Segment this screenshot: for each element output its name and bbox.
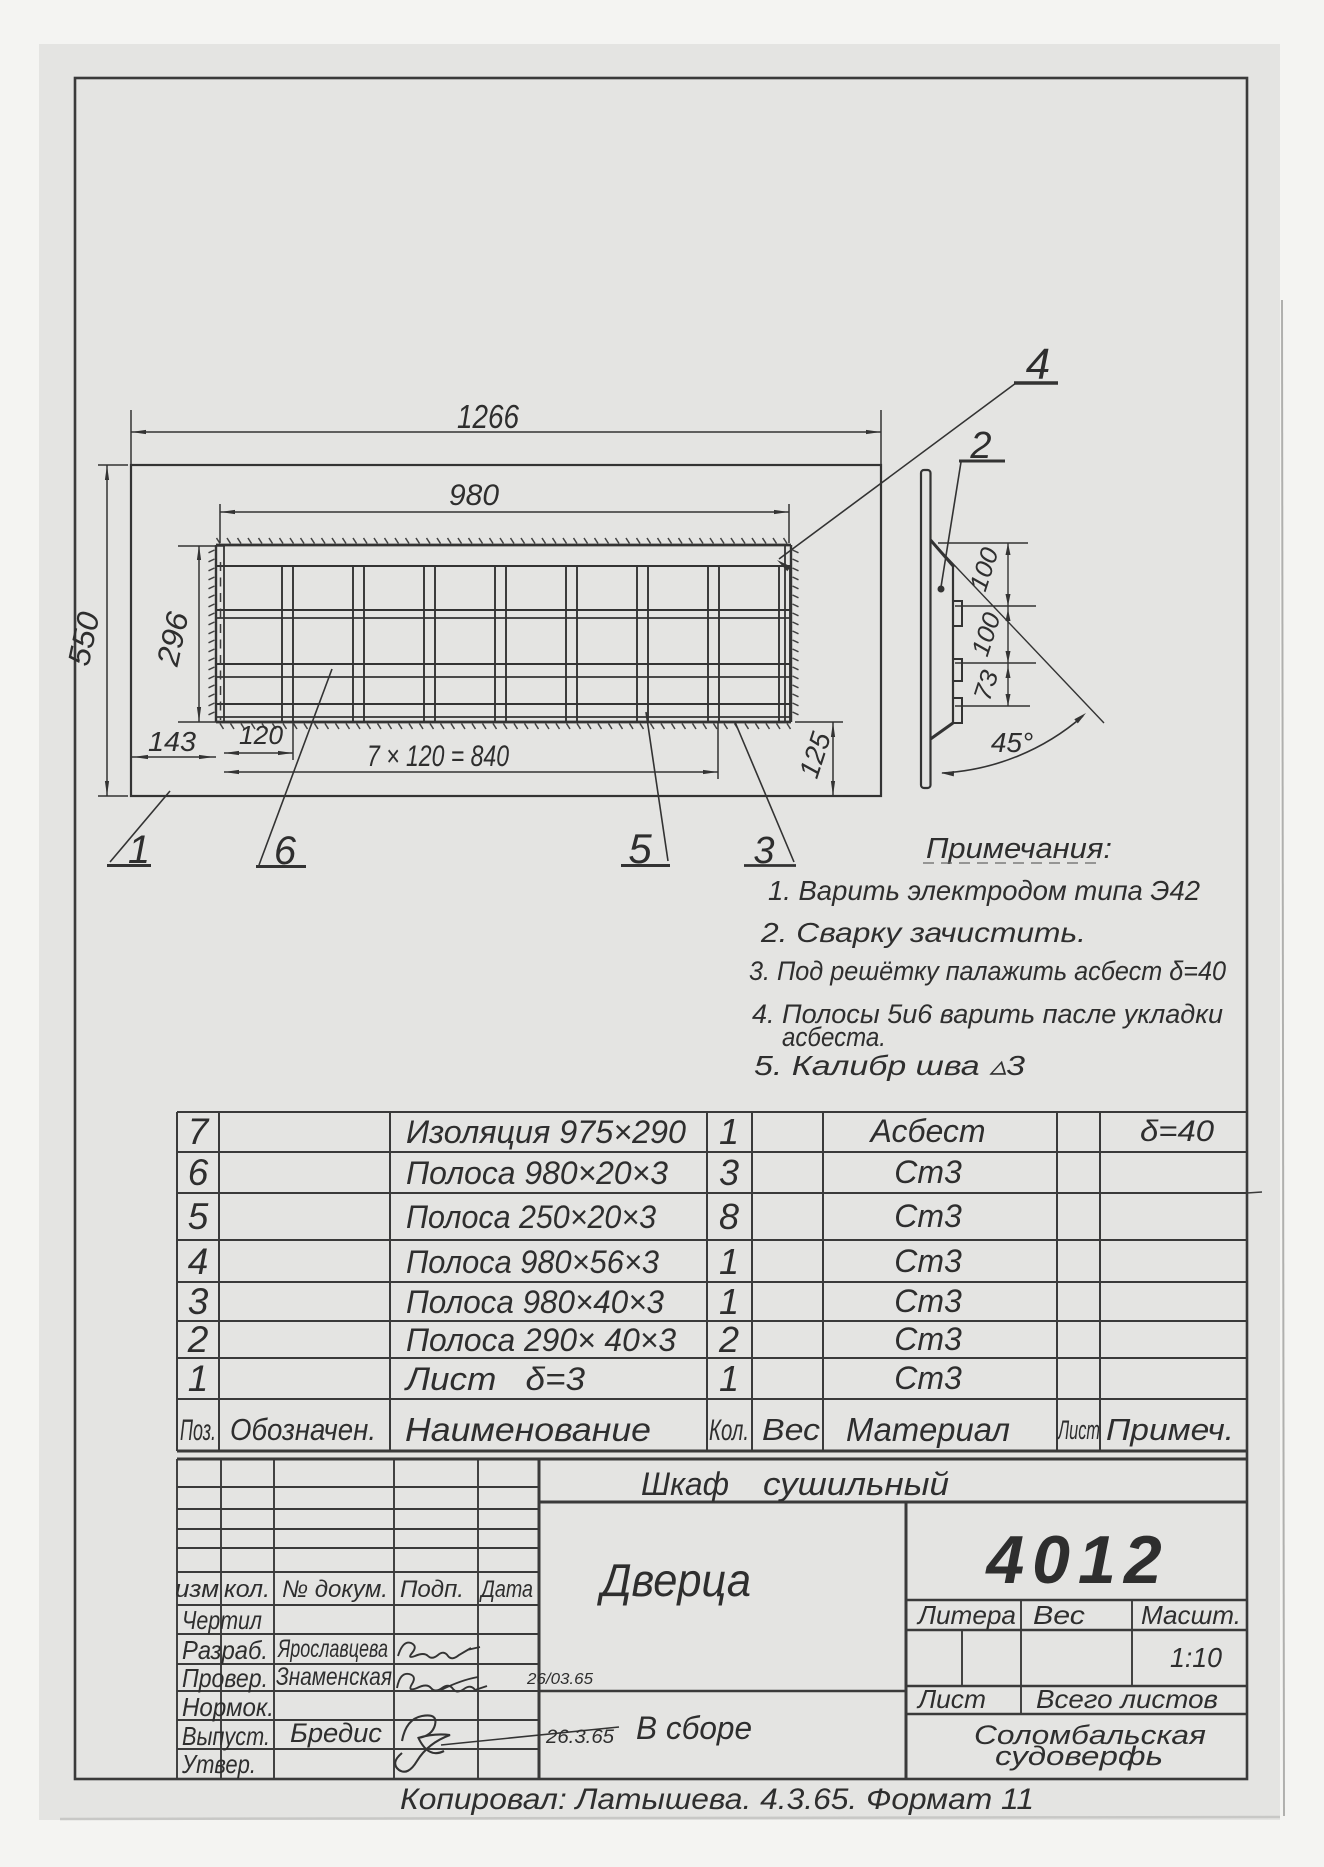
svg-text:5: 5 — [628, 825, 652, 872]
svg-text:1: 1 — [719, 1358, 739, 1399]
svg-text:6: 6 — [274, 829, 297, 873]
svg-text:2: 2 — [718, 1319, 739, 1360]
svg-text:1:10: 1:10 — [1170, 1642, 1222, 1673]
svg-text:3: 3 — [753, 830, 774, 872]
svg-text:Лист: Лист — [916, 1684, 986, 1714]
svg-text:4: 4 — [1026, 340, 1050, 389]
svg-text:Нормок.: Нормок. — [182, 1692, 274, 1722]
svg-text:Полоса 290× 40×3: Полоса 290× 40×3 — [406, 1322, 676, 1358]
svg-text:143: 143 — [148, 726, 196, 757]
svg-text:26.3.65: 26.3.65 — [545, 1727, 615, 1748]
svg-text:8: 8 — [719, 1196, 739, 1237]
svg-text:5: 5 — [188, 1196, 209, 1237]
svg-text:Провер.: Провер. — [182, 1663, 268, 1693]
svg-text:4: 4 — [188, 1241, 209, 1282]
svg-text:2: 2 — [187, 1319, 209, 1360]
svg-text:судоверфь: судоверфь — [995, 1741, 1163, 1771]
svg-text:Разраб.: Разраб. — [182, 1635, 268, 1665]
svg-text:Наименование: Наименование — [405, 1411, 651, 1448]
svg-text:Масшт.: Масшт. — [1141, 1600, 1241, 1630]
svg-text:4012: 4012 — [984, 1522, 1169, 1598]
svg-text:Всего листов: Всего листов — [1036, 1684, 1218, 1714]
svg-text:кол.: кол. — [224, 1576, 270, 1603]
svg-text:3: 3 — [719, 1152, 739, 1193]
svg-text:7 × 120 = 840: 7 × 120 = 840 — [367, 740, 509, 773]
svg-text:Ст3: Ст3 — [894, 1198, 962, 1234]
svg-text:Ст3: Ст3 — [894, 1243, 962, 1279]
svg-text:6: 6 — [188, 1152, 209, 1193]
svg-text:Лист: Лист — [1057, 1415, 1100, 1445]
svg-text:Вес: Вес — [1033, 1600, 1085, 1630]
svg-text:120: 120 — [239, 720, 284, 750]
svg-text:Полоса 250×20×3: Полоса 250×20×3 — [406, 1199, 656, 1235]
svg-text:2: 2 — [969, 425, 991, 467]
svg-text:Ст3: Ст3 — [894, 1321, 962, 1357]
svg-text:Ст3: Ст3 — [894, 1283, 962, 1319]
svg-text:Чертил: Чертил — [182, 1605, 262, 1635]
svg-text:1: 1 — [719, 1281, 739, 1322]
svg-text:Примечания:: Примечания: — [926, 833, 1112, 865]
svg-text:7: 7 — [188, 1111, 210, 1152]
svg-text:Литера: Литера — [916, 1600, 1016, 1630]
svg-text:Полоса 980×40×3: Полоса 980×40×3 — [406, 1284, 664, 1320]
svg-text:Кол.: Кол. — [709, 1414, 749, 1447]
svg-text:Вес: Вес — [762, 1412, 821, 1447]
svg-text:Утвер.: Утвер. — [181, 1749, 256, 1779]
svg-text:3. Под решётку палажить асбест: 3. Под решётку палажить асбест δ=40 — [749, 956, 1226, 986]
svg-text:1266: 1266 — [457, 398, 520, 435]
svg-text:Материал: Материал — [846, 1411, 1010, 1448]
svg-text:Полоса 980×56×3: Полоса 980×56×3 — [406, 1244, 659, 1280]
svg-text:Примеч.: Примеч. — [1106, 1412, 1234, 1447]
svg-text:1. Варить электродом типа Э42: 1. Варить электродом типа Э42 — [768, 875, 1200, 906]
svg-text:1: 1 — [719, 1241, 739, 1282]
svg-text:1: 1 — [128, 828, 150, 872]
svg-text:сушильный: сушильный — [763, 1466, 949, 1502]
svg-text:Лист δ=3: Лист δ=3 — [404, 1361, 585, 1397]
svg-text:980: 980 — [449, 479, 499, 512]
svg-text:Ст3: Ст3 — [894, 1360, 962, 1396]
svg-text:Изоляция 975×290: Изоляция 975×290 — [406, 1114, 686, 1150]
svg-text:3: 3 — [188, 1281, 209, 1322]
svg-text:Асбест: Асбест — [868, 1113, 985, 1149]
svg-text:Дверца: Дверца — [596, 1554, 751, 1606]
svg-text:Полоса 980×20×3: Полоса 980×20×3 — [406, 1155, 668, 1191]
svg-text:Ст3: Ст3 — [894, 1154, 962, 1190]
svg-text:1: 1 — [188, 1358, 209, 1399]
svg-text:Дата: Дата — [479, 1576, 533, 1603]
svg-text:Бредис: Бредис — [290, 1718, 382, 1748]
svg-text:Поз.: Поз. — [180, 1414, 216, 1447]
svg-text:Подп.: Подп. — [400, 1576, 464, 1603]
svg-text:δ=40: δ=40 — [1140, 1115, 1214, 1148]
svg-text:асбеста.: асбеста. — [782, 1022, 886, 1052]
svg-text:45°: 45° — [991, 727, 1033, 758]
svg-text:изм: изм — [175, 1576, 219, 1603]
svg-text:Шкаф: Шкаф — [641, 1466, 729, 1502]
svg-text:Копировал: Латышева. 4.3.65.: Копировал: Латышева. 4.3.65. Формат 11 — [400, 1783, 1034, 1816]
svg-text:Ярославцева: Ярославцева — [277, 1635, 388, 1663]
svg-text:2. Сварку зачистить.: 2. Сварку зачистить. — [760, 917, 1086, 948]
svg-text:В сборе: В сборе — [636, 1710, 752, 1746]
svg-text:Знаменская: Знаменская — [276, 1663, 392, 1691]
svg-text:Обозначен.: Обозначен. — [230, 1412, 376, 1447]
svg-text:Выпуст.: Выпуст. — [182, 1721, 270, 1751]
svg-text:26/03.65: 26/03.65 — [526, 1671, 593, 1688]
svg-text:1: 1 — [719, 1111, 739, 1152]
svg-text:№ докум.: № докум. — [282, 1576, 388, 1603]
svg-text:5. Калибр шва ▵3: 5. Калибр шва ▵3 — [754, 1050, 1026, 1081]
